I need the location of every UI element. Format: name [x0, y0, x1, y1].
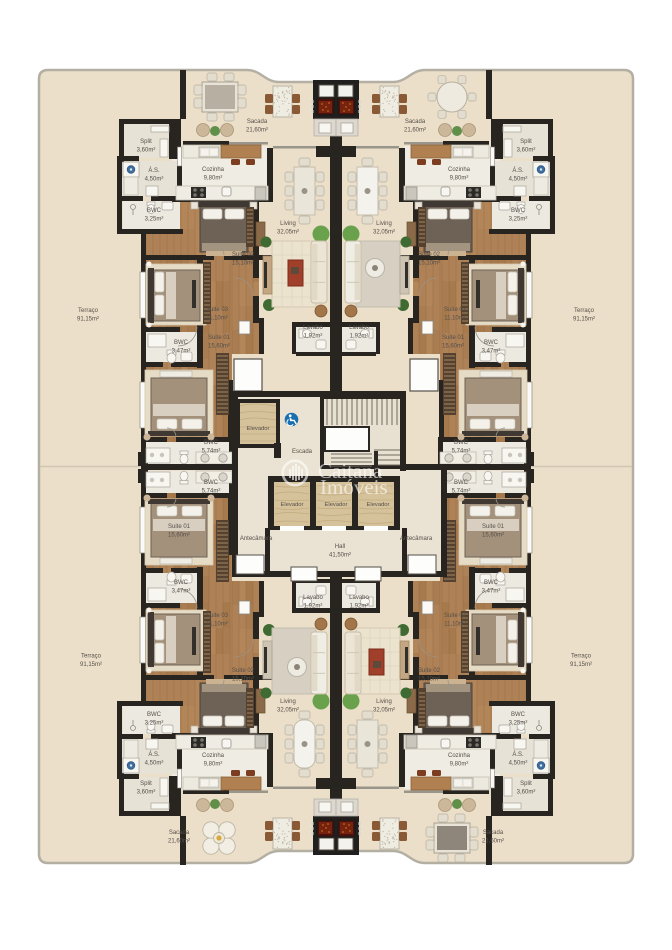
svg-text:91,15m²: 91,15m² [570, 662, 592, 668]
svg-text:Lavabo: Lavabo [303, 595, 323, 601]
svg-text:3,47m²: 3,47m² [482, 588, 501, 594]
svg-text:Cozinha: Cozinha [202, 753, 225, 759]
svg-text:Terraço: Terraço [574, 308, 595, 314]
svg-text:5,74m²: 5,74m² [452, 448, 471, 454]
svg-text:Split: Split [520, 139, 532, 145]
svg-text:3,60m²: 3,60m² [137, 147, 156, 153]
svg-text:Lavabo: Lavabo [349, 325, 369, 331]
svg-text:11,10m²: 11,10m² [206, 315, 228, 321]
svg-text:Sacada: Sacada [247, 119, 268, 125]
svg-text:11,10m²: 11,10m² [206, 621, 228, 627]
svg-text:Living: Living [280, 221, 296, 227]
svg-text:Cozinha: Cozinha [202, 167, 225, 173]
svg-text:Suite 03: Suite 03 [206, 613, 229, 619]
svg-text:Sacada: Sacada [169, 830, 190, 836]
svg-text:Suite 01: Suite 01 [168, 524, 191, 530]
svg-text:Á.S.: Á.S. [148, 751, 160, 758]
svg-text:Á.S.: Á.S. [148, 167, 160, 174]
svg-text:9,80m²: 9,80m² [204, 761, 223, 767]
svg-text:1,92m²: 1,92m² [304, 603, 323, 609]
svg-text:Lavabo: Lavabo [303, 325, 323, 331]
svg-text:BWC: BWC [204, 440, 219, 446]
svg-text:21,60m²: 21,60m² [246, 127, 268, 133]
svg-text:9,80m²: 9,80m² [450, 761, 469, 767]
svg-text:BWC: BWC [484, 580, 499, 586]
svg-text:BWC: BWC [511, 208, 526, 214]
svg-text:BWC: BWC [204, 480, 219, 486]
svg-text:Suite 02: Suite 02 [418, 668, 441, 674]
svg-text:21,60m²: 21,60m² [404, 127, 426, 133]
svg-text:Sacada: Sacada [483, 830, 504, 836]
svg-text:Imóveis: Imóveis [320, 475, 388, 499]
svg-text:Living: Living [376, 221, 392, 227]
svg-text:Suite 01: Suite 01 [442, 335, 465, 341]
svg-text:4,50m²: 4,50m² [509, 760, 528, 766]
svg-text:Suite 03: Suite 03 [206, 307, 229, 313]
svg-text:32,05m²: 32,05m² [373, 707, 395, 713]
svg-text:9,80m²: 9,80m² [450, 175, 469, 181]
svg-text:15,10m²: 15,10m² [232, 260, 254, 266]
svg-text:5,74m²: 5,74m² [202, 488, 221, 494]
svg-text:Antecâmara: Antecâmara [400, 536, 433, 542]
svg-text:Elevador: Elevador [367, 502, 390, 508]
svg-text:4,50m²: 4,50m² [509, 176, 528, 182]
svg-text:BWC: BWC [147, 712, 162, 718]
svg-text:91,15m²: 91,15m² [573, 316, 595, 322]
svg-text:Elevador: Elevador [281, 502, 304, 508]
svg-text:91,15m²: 91,15m² [80, 662, 102, 668]
svg-text:15,60m²: 15,60m² [442, 343, 464, 349]
svg-text:Living: Living [376, 699, 392, 705]
svg-text:Split: Split [140, 139, 152, 145]
svg-text:32,05m²: 32,05m² [277, 229, 299, 235]
svg-text:Suite 02: Suite 02 [232, 252, 255, 258]
svg-text:Cozinha: Cozinha [448, 167, 471, 173]
svg-text:Terraço: Terraço [78, 308, 99, 314]
svg-text:1,92m²: 1,92m² [350, 603, 369, 609]
svg-text:11,10m²: 11,10m² [444, 315, 466, 321]
svg-text:Lavabo: Lavabo [349, 595, 369, 601]
svg-text:32,05m²: 32,05m² [277, 707, 299, 713]
svg-text:15,60m²: 15,60m² [482, 532, 504, 538]
svg-text:Antecâmara: Antecâmara [240, 536, 273, 542]
svg-text:3,25m²: 3,25m² [509, 720, 528, 726]
svg-text:15,60m²: 15,60m² [168, 532, 190, 538]
svg-text:1,92m²: 1,92m² [304, 333, 323, 339]
svg-text:5,74m²: 5,74m² [452, 488, 471, 494]
svg-text:Terraço: Terraço [571, 654, 592, 660]
svg-text:Suite 02: Suite 02 [232, 668, 255, 674]
svg-text:BWC: BWC [511, 712, 526, 718]
svg-text:3,47m²: 3,47m² [172, 588, 191, 594]
svg-text:Suite 03: Suite 03 [444, 307, 467, 313]
svg-text:15,10m²: 15,10m² [418, 260, 440, 266]
svg-text:BWC: BWC [484, 340, 499, 346]
svg-text:11,10m²: 11,10m² [444, 621, 466, 627]
svg-text:5,74m²: 5,74m² [202, 448, 221, 454]
svg-text:Elevador: Elevador [247, 426, 270, 432]
svg-text:3,47m²: 3,47m² [482, 348, 501, 354]
svg-text:3,60m²: 3,60m² [517, 147, 536, 153]
svg-text:Cozinha: Cozinha [448, 753, 471, 759]
svg-text:Suite 01: Suite 01 [208, 335, 231, 341]
svg-text:3,60m²: 3,60m² [517, 789, 536, 795]
svg-text:BWC: BWC [454, 480, 469, 486]
svg-text:BWC: BWC [454, 440, 469, 446]
svg-text:32,05m²: 32,05m² [373, 229, 395, 235]
svg-text:41,50m²: 41,50m² [329, 552, 351, 558]
svg-text:21,60m²: 21,60m² [168, 838, 190, 844]
svg-text:Escada: Escada [292, 449, 313, 455]
svg-text:15,10m²: 15,10m² [232, 676, 254, 682]
svg-text:Hall: Hall [335, 544, 345, 550]
svg-text:3,25m²: 3,25m² [145, 216, 164, 222]
svg-text:Split: Split [140, 781, 152, 787]
svg-text:9,80m²: 9,80m² [204, 175, 223, 181]
svg-text:Sacada: Sacada [405, 119, 426, 125]
svg-text:3,60m²: 3,60m² [137, 789, 156, 795]
svg-text:Suite 01: Suite 01 [482, 524, 505, 530]
svg-text:15,60m²: 15,60m² [208, 343, 230, 349]
svg-text:Terraço: Terraço [81, 654, 102, 660]
svg-text:BWC: BWC [174, 340, 189, 346]
svg-text:BWC: BWC [147, 208, 162, 214]
svg-text:Split: Split [520, 781, 532, 787]
svg-text:3,47m²: 3,47m² [172, 348, 191, 354]
svg-text:3,25m²: 3,25m² [145, 720, 164, 726]
svg-text:Suite 02: Suite 02 [418, 252, 441, 258]
svg-text:1,92m²: 1,92m² [350, 333, 369, 339]
svg-text:Suite 03: Suite 03 [444, 613, 467, 619]
svg-text:91,15m²: 91,15m² [77, 316, 99, 322]
svg-text:3,25m²: 3,25m² [509, 216, 528, 222]
svg-text:Living: Living [280, 699, 296, 705]
svg-text:4,50m²: 4,50m² [145, 760, 164, 766]
svg-text:Á.S.: Á.S. [512, 751, 524, 758]
svg-text:21,60m²: 21,60m² [482, 838, 504, 844]
svg-text:4,50m²: 4,50m² [145, 176, 164, 182]
svg-text:Elevador: Elevador [325, 502, 348, 508]
svg-text:BWC: BWC [174, 580, 189, 586]
svg-text:Á.S.: Á.S. [512, 167, 524, 174]
svg-text:15,10m²: 15,10m² [418, 676, 440, 682]
